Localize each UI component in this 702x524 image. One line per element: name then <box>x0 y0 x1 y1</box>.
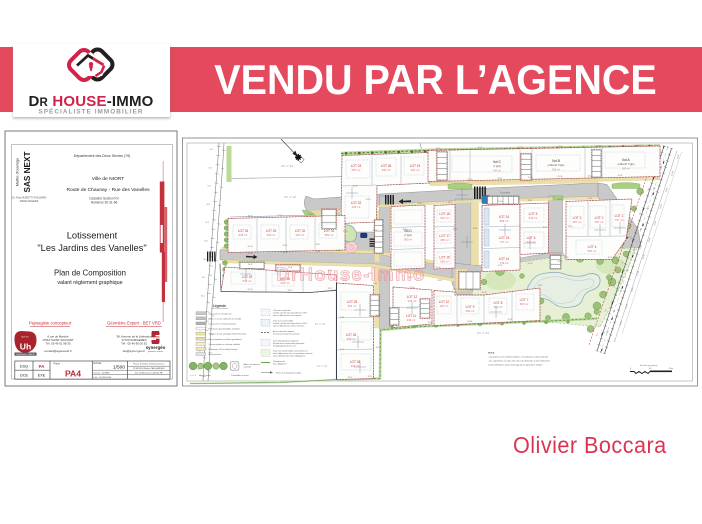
svg-text:30.06: 30.06 <box>416 151 421 153</box>
svg-text:DrHouse-Immo: DrHouse-Immo <box>276 264 425 285</box>
svg-text:Ville de NIORT: Ville de NIORT <box>92 176 124 182</box>
svg-text:KV n° 46: KV n° 46 <box>317 364 328 368</box>
svg-text:Maître d’ouvrage: Maître d’ouvrage <box>16 158 20 187</box>
svg-text:25.00: 25.00 <box>588 176 593 178</box>
svg-text:25.00: 25.00 <box>410 287 415 289</box>
svg-text:84.2: 84.2 <box>208 186 212 188</box>
svg-text:333 m²: 333 m² <box>351 364 360 368</box>
svg-text:25.00: 25.00 <box>468 179 473 181</box>
svg-text:360 m²: 360 m² <box>440 304 449 308</box>
svg-text:84.2: 84.2 <box>202 277 206 279</box>
svg-text:Lotissement: Lotissement <box>67 230 118 241</box>
svg-text:535 m²: 535 m² <box>243 279 252 283</box>
svg-text:747 m²: 747 m² <box>500 240 509 244</box>
svg-text:19.81: 19.81 <box>316 251 321 253</box>
svg-text:12.00: 12.00 <box>528 177 533 179</box>
svg-text:"Les Jardins des Vanelles": "Les Jardins des Vanelles" <box>37 243 146 253</box>
svg-text:28.57: 28.57 <box>438 180 443 182</box>
svg-text:SAS NEXT: SAS NEXT <box>23 152 32 193</box>
svg-text:EXE: EXE <box>38 373 46 377</box>
svg-text:25.00: 25.00 <box>353 186 358 188</box>
svg-text:Sens de la façade principale: Sens de la façade principale <box>276 372 302 374</box>
svg-text:649 m²: 649 m² <box>529 216 538 220</box>
svg-text:Tél. 05 49 01 98 35: Tél. 05 49 01 98 35 <box>46 342 71 346</box>
svg-text:15.24: 15.24 <box>340 349 345 351</box>
svg-text:49000 ANGERS: 49000 ANGERS <box>20 199 39 203</box>
svg-text:Infrastructures: Infrastructures <box>209 353 222 356</box>
svg-text:28.57: 28.57 <box>453 289 458 291</box>
svg-text:25.00: 25.00 <box>283 252 288 254</box>
svg-text:Nouvelle: Nouvelle <box>500 191 511 195</box>
svg-text:valant règlement graphique: valant règlement graphique <box>57 280 122 286</box>
svg-text:bet@syner-geo.fr: bet@syner-geo.fr <box>123 349 145 353</box>
svg-text:347 m²: 347 m² <box>527 240 536 244</box>
svg-text:Dessin : 219886: Dessin : 219886 <box>94 372 111 374</box>
svg-text:508 m²: 508 m² <box>239 233 248 237</box>
svg-text:15.24: 15.24 <box>436 148 441 150</box>
svg-text:Echelle graphique: Echelle graphique <box>640 364 658 367</box>
svg-text:15.24: 15.24 <box>638 145 643 147</box>
svg-text:25.00: 25.00 <box>388 152 393 154</box>
svg-text:30.06: 30.06 <box>376 315 381 317</box>
svg-text:25.00: 25.00 <box>436 267 441 269</box>
svg-text:25.00: 25.00 <box>508 319 513 321</box>
svg-text:398 m²: 398 m² <box>347 337 356 341</box>
svg-text:à planter: à planter <box>244 365 252 368</box>
svg-text:25.00: 25.00 <box>558 146 563 148</box>
svg-text:28.57: 28.57 <box>558 261 563 263</box>
svg-text:15.24: 15.24 <box>608 257 613 259</box>
svg-text:30.06: 30.06 <box>403 229 408 231</box>
svg-text:Trottoirs et esp. partagés bét: Trottoirs et esp. partagés béton désacti… <box>209 333 247 336</box>
svg-text:Géomètre Expert - BET VRD: Géomètre Expert - BET VRD <box>107 321 161 326</box>
svg-text:84.2: 84.2 <box>205 222 209 224</box>
svg-text:19.81: 19.81 <box>340 317 345 319</box>
svg-text:Fich : N-2019-046: Fich : N-2019-046 <box>94 377 112 379</box>
svg-text:28.57: 28.57 <box>348 377 353 379</box>
svg-text:(1 seul accès par lot autorisé: (1 seul accès par lot autorisé) <box>273 332 300 335</box>
svg-text:KV n° 45: KV n° 45 <box>315 322 326 326</box>
svg-text:haie obligatoire: haie obligatoire <box>273 362 287 365</box>
svg-text:- les superficies et cotes des: - les superficies et cotes des lots sont… <box>488 360 550 363</box>
svg-text:19.81: 19.81 <box>248 264 253 266</box>
svg-text:12.00: 12.00 <box>498 265 503 267</box>
svg-text:390 m²: 390 m² <box>382 168 391 172</box>
svg-text:25.00: 25.00 <box>248 246 253 248</box>
svg-text:391 m²: 391 m² <box>440 216 449 220</box>
svg-text:28.57: 28.57 <box>538 285 543 287</box>
svg-text:30.06: 30.06 <box>248 216 253 218</box>
svg-text:28.57: 28.57 <box>328 288 333 290</box>
svg-text:500 m²: 500 m² <box>296 233 305 237</box>
svg-text:395 m²: 395 m² <box>440 238 449 242</box>
svg-text:12.00: 12.00 <box>278 215 283 217</box>
svg-text:8.00: 8.00 <box>626 237 630 239</box>
svg-text:Chaussée en enrobé grenaillé: Chaussée en enrobé grenaillé <box>209 323 237 326</box>
svg-text:28.57: 28.57 <box>438 280 443 282</box>
svg-text:500 m²: 500 m² <box>267 233 276 237</box>
svg-text:19.81: 19.81 <box>283 245 288 247</box>
svg-text:25.00: 25.00 <box>528 263 533 265</box>
svg-text:Allées et accès véhicules en e: Allées et accès véhicules en enrobé <box>209 317 243 320</box>
svg-text:soit en débord avec toiture te: soit en débord avec toiture terrasse <box>273 325 305 328</box>
svg-text:393 m²: 393 m² <box>440 260 449 264</box>
svg-text:239 m²: 239 m² <box>407 318 416 322</box>
svg-text:Parking en gravier/dalles alvé: Parking en gravier/dalles alvéolées <box>209 328 241 331</box>
svg-text:8.00: 8.00 <box>336 213 340 215</box>
svg-text:699 m²: 699 m² <box>622 167 630 171</box>
svg-text:25.00: 25.00 <box>478 147 483 149</box>
svg-text:581 m²: 581 m² <box>588 249 597 253</box>
svg-text:îlot A: îlot A <box>621 158 630 162</box>
svg-text:15.24: 15.24 <box>368 376 373 378</box>
svg-text:agence: agence <box>21 336 30 339</box>
svg-text:Phase d’études d’infrastructur: Phase d’études d’infrastructures <box>133 363 165 366</box>
svg-text:(7 lgts): (7 lgts) <box>493 165 501 168</box>
svg-text:Numéros 30-31-66: Numéros 30-31-66 <box>91 201 118 205</box>
svg-text:URBANISME & HABITAT: URBANISME & HABITAT <box>16 353 35 356</box>
svg-text:84.2: 84.2 <box>201 295 205 297</box>
svg-text:îlot C: îlot C <box>492 160 501 164</box>
svg-text:Département des Deux Sèvres (7: Département des Deux Sèvres (79) <box>74 154 131 158</box>
svg-text:25.00: 25.00 <box>248 289 253 291</box>
svg-text:synergéo: synergéo <box>146 345 166 350</box>
svg-text:20m: 20m <box>669 368 673 370</box>
svg-text:28.57: 28.57 <box>528 200 533 202</box>
svg-text:84.2: 84.2 <box>203 259 207 261</box>
svg-text:DCE: DCE <box>20 373 28 377</box>
svg-text:30.06: 30.06 <box>468 321 473 323</box>
svg-text:15.24: 15.24 <box>618 175 623 177</box>
svg-text:Candélabre à poser: Candélabre à poser <box>231 375 249 377</box>
svg-text:287 m²: 287 m² <box>595 220 604 224</box>
svg-text:28.57: 28.57 <box>558 199 563 201</box>
svg-text:Ind. 2019 Dossier définit: Ind. 2019 Dossier définitif PA <box>135 371 163 374</box>
svg-text:PA: PA <box>39 364 46 369</box>
svg-text:1/500: 1/500 <box>113 364 125 370</box>
svg-text:Paysagiste concepteur: Paysagiste concepteur <box>29 321 72 326</box>
svg-text:28.57: 28.57 <box>448 202 453 204</box>
svg-text:15.24: 15.24 <box>588 198 593 200</box>
svg-text:12.00: 12.00 <box>518 147 523 149</box>
svg-text:989 m²: 989 m² <box>500 219 509 223</box>
svg-text:12.00: 12.00 <box>366 199 371 201</box>
svg-text:360 m²: 360 m² <box>520 302 529 306</box>
svg-text:NOTA :: NOTA : <box>488 352 496 355</box>
svg-text:25.00: 25.00 <box>498 201 503 203</box>
svg-text:Plan de Composition: Plan de Composition <box>54 269 126 278</box>
svg-text:contact@agenceuh.fr: contact@agenceuh.fr <box>44 349 72 353</box>
svg-text:Uh: Uh <box>20 342 31 352</box>
svg-text:361 m²: 361 m² <box>348 304 357 308</box>
svg-text:KV n° 44: KV n° 44 <box>281 164 293 168</box>
svg-text:84.2: 84.2 <box>210 149 214 151</box>
svg-text:28.57: 28.57 <box>316 244 321 246</box>
svg-text:- la position et le nombre d’a: - la position et le nombre d’arbres et d… <box>488 356 548 359</box>
svg-text:Mare à projet: Mare à projet <box>199 374 211 377</box>
svg-text:767 m²: 767 m² <box>615 218 624 222</box>
svg-text:(7 lgts): (7 lgts) <box>404 234 412 237</box>
svg-text:28.57: 28.57 <box>358 153 363 155</box>
svg-text:25.00: 25.00 <box>343 231 348 233</box>
svg-text:84.2: 84.2 <box>198 350 202 352</box>
svg-text:550 m²: 550 m² <box>352 168 361 172</box>
svg-text:84.2: 84.2 <box>206 204 210 206</box>
svg-text:Plateforme 150 en béton balayé: Plateforme 150 en béton balayé <box>209 348 239 351</box>
svg-text:28.57: 28.57 <box>376 347 381 349</box>
svg-text:550 m²: 550 m² <box>325 233 334 237</box>
svg-text:381 m²: 381 m² <box>411 168 420 172</box>
svg-text:8.00: 8.00 <box>543 227 547 229</box>
svg-text:Accès·bordures en béton gravil: Accès·bordures en béton gravillonné <box>209 338 243 341</box>
svg-text:890 m²: 890 m² <box>404 238 412 242</box>
svg-text:avec plantation de haies oblig: avec plantation de haies obligatoires <box>273 355 305 358</box>
svg-text:28.57: 28.57 <box>598 146 603 148</box>
svg-text:Tél : 05 46 90 00 35: Tél : 05 46 90 00 35 <box>121 342 147 346</box>
svg-text:Echelle :: Echelle : <box>94 362 104 365</box>
svg-text:ESQ: ESQ <box>20 365 28 369</box>
svg-text:Pièce :: Pièce : <box>54 362 62 366</box>
svg-text:énergétiquement ind. 5 m.: énergétiquement ind. 5 m. <box>273 344 297 347</box>
svg-text:8.00: 8.00 <box>390 204 394 206</box>
svg-text:(collectif 7 lgts): (collectif 7 lgts) <box>548 164 565 167</box>
svg-text:12.00: 12.00 <box>428 322 433 324</box>
svg-text:8.00: 8.00 <box>418 203 422 205</box>
svg-text:84.2: 84.2 <box>204 241 208 243</box>
svg-text:25.00: 25.00 <box>558 176 563 178</box>
svg-text:25.00: 25.00 <box>482 292 487 294</box>
svg-text:19.81: 19.81 <box>473 228 478 230</box>
svg-text:352 m²: 352 m² <box>494 305 503 309</box>
svg-text:KV n° 44: KV n° 44 <box>477 331 489 335</box>
svg-text:PA4: PA4 <box>65 369 81 379</box>
svg-text:360 m²: 360 m² <box>466 309 475 313</box>
svg-text:15.24: 15.24 <box>308 214 313 216</box>
svg-text:27/05/2024 Melvin TAILLANDI: 27/05/2024 Melvin TAILLANDIER <box>133 367 165 370</box>
svg-text:KV n° 14: KV n° 14 <box>284 195 296 199</box>
svg-text:8.00: 8.00 <box>393 324 397 326</box>
svg-text:(collectif 7 lgts): (collectif 7 lgts) <box>618 163 635 166</box>
svg-text:287 m²: 287 m² <box>573 220 582 224</box>
svg-text:28.57: 28.57 <box>373 230 378 232</box>
svg-text:Légende: Légende <box>213 304 226 308</box>
svg-text:84.2: 84.2 <box>209 167 213 169</box>
svg-text:25.00: 25.00 <box>248 253 253 255</box>
svg-text:12.00: 12.00 <box>564 257 569 259</box>
svg-text:Route de Chaunay - Rue des Van: Route de Chaunay - Rue des Vanelles <box>66 187 150 193</box>
svg-text:Chaussée en enrobé noir: Chaussée en enrobé noir <box>209 312 232 315</box>
svg-text:28.57: 28.57 <box>498 178 503 180</box>
svg-text:28.57: 28.57 <box>453 229 458 231</box>
svg-text:géomètres experts: géomètres experts <box>148 350 163 353</box>
svg-text:seront définitives après borna: seront définitives après bornage par le … <box>488 364 543 367</box>
svg-text:345 m²: 345 m² <box>352 205 361 209</box>
svg-text:îlot B: îlot B <box>551 159 560 163</box>
svg-text:soit en débord avec toit terra: soit en débord avec toit terrasse <box>273 314 302 317</box>
svg-text:Chemin piéton en calcaire stab: Chemin piéton en calcaire stabilisé <box>209 343 241 346</box>
svg-text:28.57: 28.57 <box>288 290 293 292</box>
